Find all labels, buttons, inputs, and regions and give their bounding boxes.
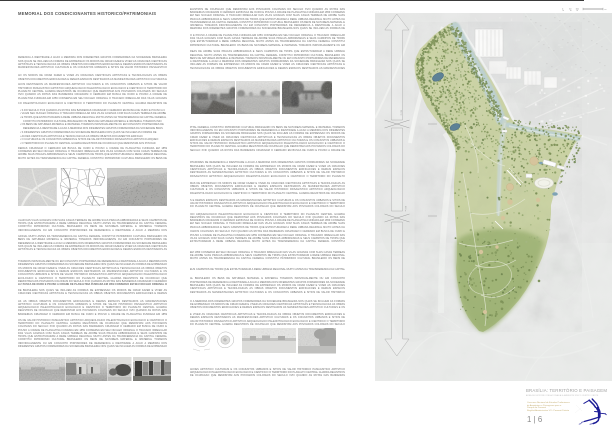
svg-text:860 m: 860 m [404, 206, 406, 212]
svg-text:m: m [605, 9, 607, 11]
svg-text:940 m: 940 m [400, 110, 402, 116]
